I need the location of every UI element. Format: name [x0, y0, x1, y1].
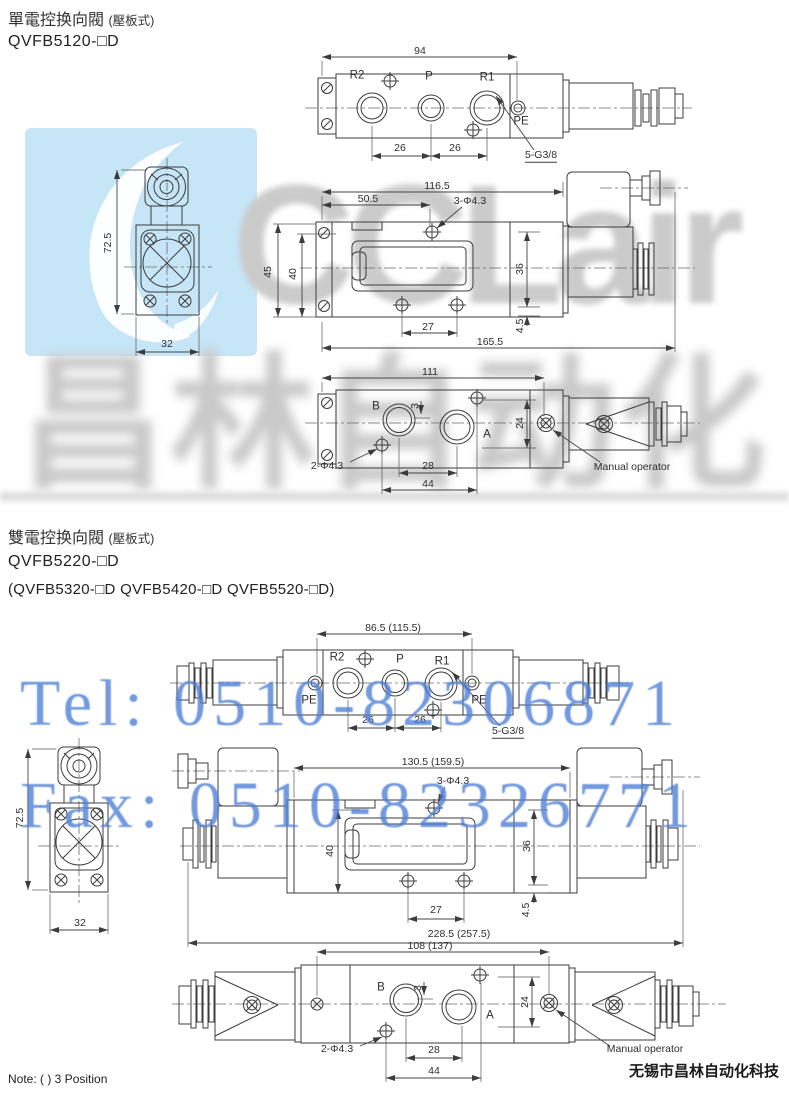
s1-top-dim-26-right: 26 — [449, 143, 461, 154]
s2-top-port-pe-left: PE — [301, 695, 316, 707]
s2-front-dim-27: 27 — [430, 905, 442, 916]
s1-side-dim-72-5: 72.5 — [103, 233, 114, 253]
s2-front-dim-4-5: 4.5 — [521, 903, 532, 918]
s1-side-dim-32: 32 — [161, 339, 173, 350]
s1-front-dim-27: 27 — [422, 322, 434, 333]
s1-top-port-r2: R2 — [350, 70, 365, 82]
s1-bottom-dim-44: 44 — [422, 479, 434, 490]
s1-front-dim-4-5: 4.5 — [515, 319, 526, 334]
s1-front-holes-callout: 3-Φ4.3 — [454, 196, 486, 207]
s2-top-dim-26-left: 26 — [362, 715, 374, 726]
s2-front-dim-40: 40 — [325, 845, 336, 857]
s2-front-holes-callout: 3-Φ4.3 — [437, 776, 469, 787]
s1-bottom-dim-111: 111 — [422, 367, 438, 378]
s2-top-port-r1: R1 — [435, 656, 450, 668]
s1-top-port-p: P — [425, 71, 433, 83]
s1-front-dim-45: 45 — [263, 266, 274, 278]
catalog-page: CCLair 昌林自动化 單電控换向閥 (壓板式) QVFB5120-□D 雙電… — [0, 0, 789, 1096]
s2-bottom-dim-24: 24 — [520, 996, 531, 1008]
s2-bottom-port-a: A — [486, 1010, 494, 1022]
s2-top-dim-86-5: 86.5 (115.5) — [365, 623, 421, 634]
s2-front-dim-130-5: 130.5 (159.5) — [402, 757, 464, 768]
s2-bottom-dim-108: 108 (137) — [408, 941, 453, 952]
footer-note: Note: ( ) 3 Position — [8, 1072, 107, 1086]
s1-front-dim-40: 40 — [288, 268, 299, 280]
s2-top-port-r2: R2 — [330, 652, 345, 664]
s1-bottom-port-a: A — [483, 429, 491, 441]
s2-top-thread-callout: 5-G3/8 — [492, 726, 524, 739]
s1-top-port-pe: PE — [513, 116, 528, 128]
s2-front-dim-228-5: 228.5 (257.5) — [428, 929, 490, 940]
s2-bottom-manual-operator: Manual operator — [607, 1044, 683, 1055]
s2-bottom-dim-3: 3 — [413, 985, 424, 991]
s1-front-dim-50-5: 50.5 — [358, 194, 378, 205]
s2-bottom-holes-callout: 2-Φ4.3 — [321, 1044, 353, 1055]
s1-front-dim-116-5: 116.5 — [424, 181, 450, 192]
s2-top-port-p: P — [396, 654, 404, 666]
s1-top-port-r1: R1 — [480, 72, 495, 84]
s2-side-dim-72-5: 72.5 — [15, 808, 26, 828]
s1-bottom-manual-operator: Manual operator — [594, 462, 670, 473]
s2-top-dim-26-right: 26 — [414, 715, 426, 726]
dimension-labels: 94 R2 P R1 PE 26 26 5-G3/8 72.5 32 116.5… — [0, 0, 789, 1096]
s2-top-port-pe-right: PE — [471, 695, 486, 707]
s2-bottom-port-b: B — [377, 982, 385, 994]
s1-top-dim-26-left: 26 — [394, 143, 406, 154]
s2-bottom-dim-44: 44 — [428, 1066, 440, 1077]
footer-company: 无锡市昌林自动化科技 — [629, 1060, 779, 1081]
s1-bottom-holes-callout: 2-Φ4.3 — [311, 461, 343, 472]
s2-front-dim-36: 36 — [522, 840, 533, 852]
s1-bottom-dim-28: 28 — [422, 461, 434, 472]
s1-bottom-dim-24: 24 — [515, 417, 526, 429]
s1-bottom-port-b: B — [372, 401, 380, 413]
s1-front-dim-36: 36 — [515, 263, 526, 275]
s1-top-thread-callout: 5-G3/8 — [525, 150, 557, 163]
s1-bottom-dim-3: 3 — [410, 403, 421, 409]
s2-bottom-dim-28: 28 — [428, 1045, 440, 1056]
s2-side-dim-32: 32 — [74, 918, 86, 929]
s1-front-dim-165-5: 165.5 — [477, 337, 503, 348]
s1-top-dim-94: 94 — [414, 46, 426, 57]
